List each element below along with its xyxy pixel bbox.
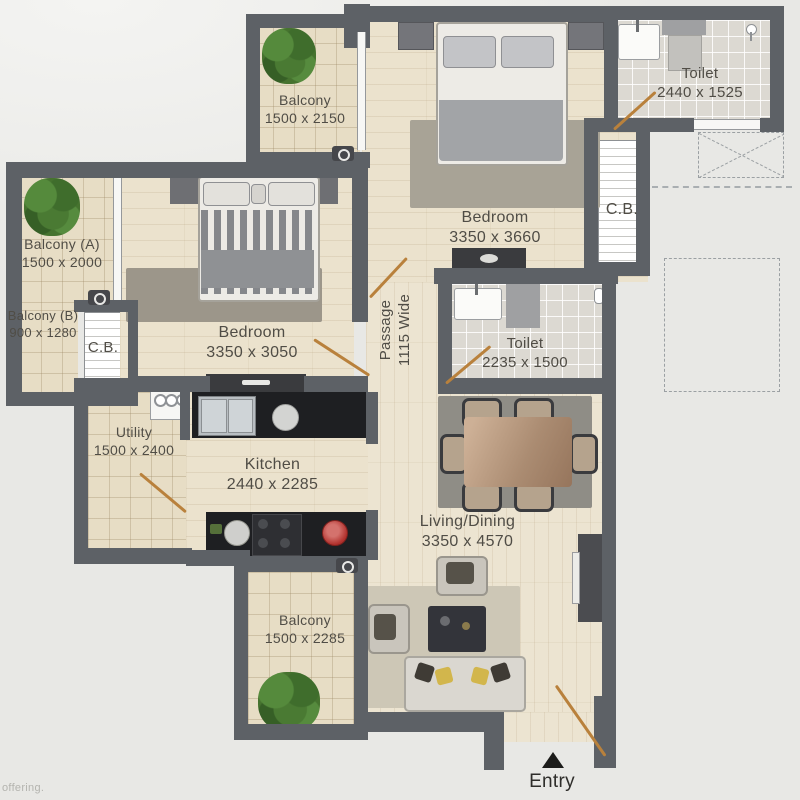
room-name: Balcony (B) — [2, 308, 84, 325]
dining-chair — [570, 434, 598, 474]
green-item — [210, 524, 222, 534]
wall — [74, 385, 88, 563]
plant-icon — [24, 178, 80, 236]
duct-line — [652, 186, 792, 188]
room-name: Toilet — [625, 64, 775, 83]
shower-partition — [506, 284, 540, 328]
wall — [246, 14, 358, 28]
room-dims: 900 x 1280 — [2, 325, 84, 342]
room-dims: 2440 x 2285 — [195, 475, 350, 495]
wall — [134, 376, 210, 392]
tap-icon — [636, 20, 639, 32]
room-name: Bedroom — [167, 323, 337, 343]
burner — [258, 519, 268, 529]
dresser-handle — [242, 380, 270, 385]
coffee-table — [428, 606, 486, 652]
burner — [258, 538, 268, 548]
pillow — [501, 36, 554, 68]
wall — [74, 548, 192, 564]
passage-label: Passage 1115 Wide — [376, 248, 424, 412]
blanket — [201, 250, 314, 288]
wall — [6, 162, 368, 178]
room-name: Living/Dining — [380, 512, 555, 532]
red-bowl — [322, 520, 348, 546]
watermark-text: offering. — [2, 782, 44, 794]
duct-area — [698, 132, 784, 178]
washbasin — [618, 24, 660, 60]
room-name: Utility — [80, 424, 188, 442]
wall — [234, 556, 248, 740]
balcony-top-label: Balcony 1500 x 2150 — [246, 92, 364, 128]
wall — [760, 118, 784, 132]
shower-partition — [662, 20, 706, 35]
room-name: Balcony — [246, 612, 364, 630]
sink-basin — [201, 399, 227, 433]
balcony-a-label: Balcony (A) 1500 x 2000 — [6, 236, 118, 272]
sliding-door-icon — [88, 290, 110, 305]
entry-arrow-icon — [542, 752, 564, 768]
nightstand — [568, 22, 604, 50]
sink-basin — [228, 399, 253, 433]
wall — [604, 6, 784, 20]
room-dims: 2440 x 1525 — [625, 83, 775, 102]
washbasin — [454, 288, 502, 320]
plant-icon — [258, 672, 320, 732]
tv-screen — [572, 552, 580, 604]
wall — [234, 724, 366, 740]
plate — [272, 404, 299, 431]
wall — [434, 268, 618, 284]
room-name: Toilet — [450, 334, 600, 353]
utility-label: Utility 1500 x 2400 — [80, 424, 188, 460]
wall — [352, 152, 368, 322]
decor-bowl — [480, 254, 498, 263]
tv-unit — [578, 534, 602, 622]
room-dims: 1500 x 2000 — [6, 254, 118, 272]
tap-icon — [475, 284, 478, 295]
wall — [246, 14, 260, 168]
bedroom-left-label: Bedroom 3350 x 3050 — [167, 323, 337, 364]
wall — [602, 274, 616, 762]
wall — [484, 712, 504, 770]
room-name: Kitchen — [195, 455, 350, 475]
room-name: Balcony (A) — [6, 236, 118, 254]
pillow — [251, 184, 266, 204]
balcony-bottom-label: Balcony 1500 x 2285 — [246, 612, 364, 648]
plate — [224, 520, 250, 546]
room-dims: 3350 x 3050 — [167, 343, 337, 363]
wall — [438, 378, 616, 394]
floor-plan: Balcony 1500 x 2150 Bedroom 3350 x 3660 … — [0, 0, 800, 800]
room-dims: 1500 x 2150 — [246, 110, 364, 128]
room-name: Passage — [376, 248, 395, 412]
sliding-door-icon — [336, 558, 358, 573]
burner — [280, 538, 290, 548]
room-dims: 1500 x 2400 — [80, 442, 188, 460]
nightstand — [170, 176, 198, 204]
room-dims: 1115 Wide — [395, 248, 414, 412]
cb-right-label: C.B. — [594, 200, 650, 220]
toilet-top-label: Toilet 2440 x 1525 — [625, 64, 775, 102]
kitchen-label: Kitchen 2440 x 2285 — [195, 455, 350, 496]
room-name: Bedroom — [410, 208, 580, 228]
nightstand — [398, 22, 434, 50]
wall — [594, 696, 616, 768]
duct-area — [664, 258, 780, 392]
living-dining-label: Living/Dining 3350 x 4570 — [380, 512, 555, 553]
wall — [6, 162, 22, 406]
room-name: C.B. — [76, 338, 130, 357]
pillow — [268, 182, 315, 206]
room-dims: 2235 x 1500 — [450, 353, 600, 372]
table-decor — [440, 616, 450, 626]
pillow — [203, 182, 250, 206]
dining-table — [464, 417, 572, 487]
room-name: Balcony — [246, 92, 364, 110]
burner — [280, 519, 290, 529]
toilet-mid-label: Toilet 2235 x 1500 — [450, 334, 600, 372]
entry-floor — [502, 712, 596, 742]
room-dims: 3350 x 3660 — [410, 228, 580, 248]
room-dims: 1500 x 2285 — [246, 630, 364, 648]
table-decor — [462, 622, 470, 630]
entry-label: Entry — [496, 770, 608, 794]
wall — [366, 510, 378, 560]
room-dims: 3350 x 4570 — [380, 532, 555, 552]
bedroom-top-label: Bedroom 3350 x 3660 — [410, 208, 580, 249]
wall — [604, 18, 618, 122]
cb-left-label: C.B. — [76, 338, 130, 357]
shower-head-stem — [750, 32, 752, 41]
window — [694, 119, 764, 130]
pillow — [443, 36, 496, 68]
wall — [6, 392, 136, 406]
sliding-door-icon — [332, 146, 354, 161]
armchair-cushion — [374, 614, 396, 640]
armchair-cushion — [446, 562, 474, 584]
wall — [304, 376, 368, 392]
balcony-b-label: Balcony (B) 900 x 1280 — [2, 308, 84, 341]
wall — [360, 712, 502, 732]
plant-icon — [262, 28, 316, 84]
wall — [348, 6, 616, 22]
window — [357, 32, 366, 150]
blanket — [439, 100, 563, 161]
room-name: C.B. — [594, 200, 650, 220]
